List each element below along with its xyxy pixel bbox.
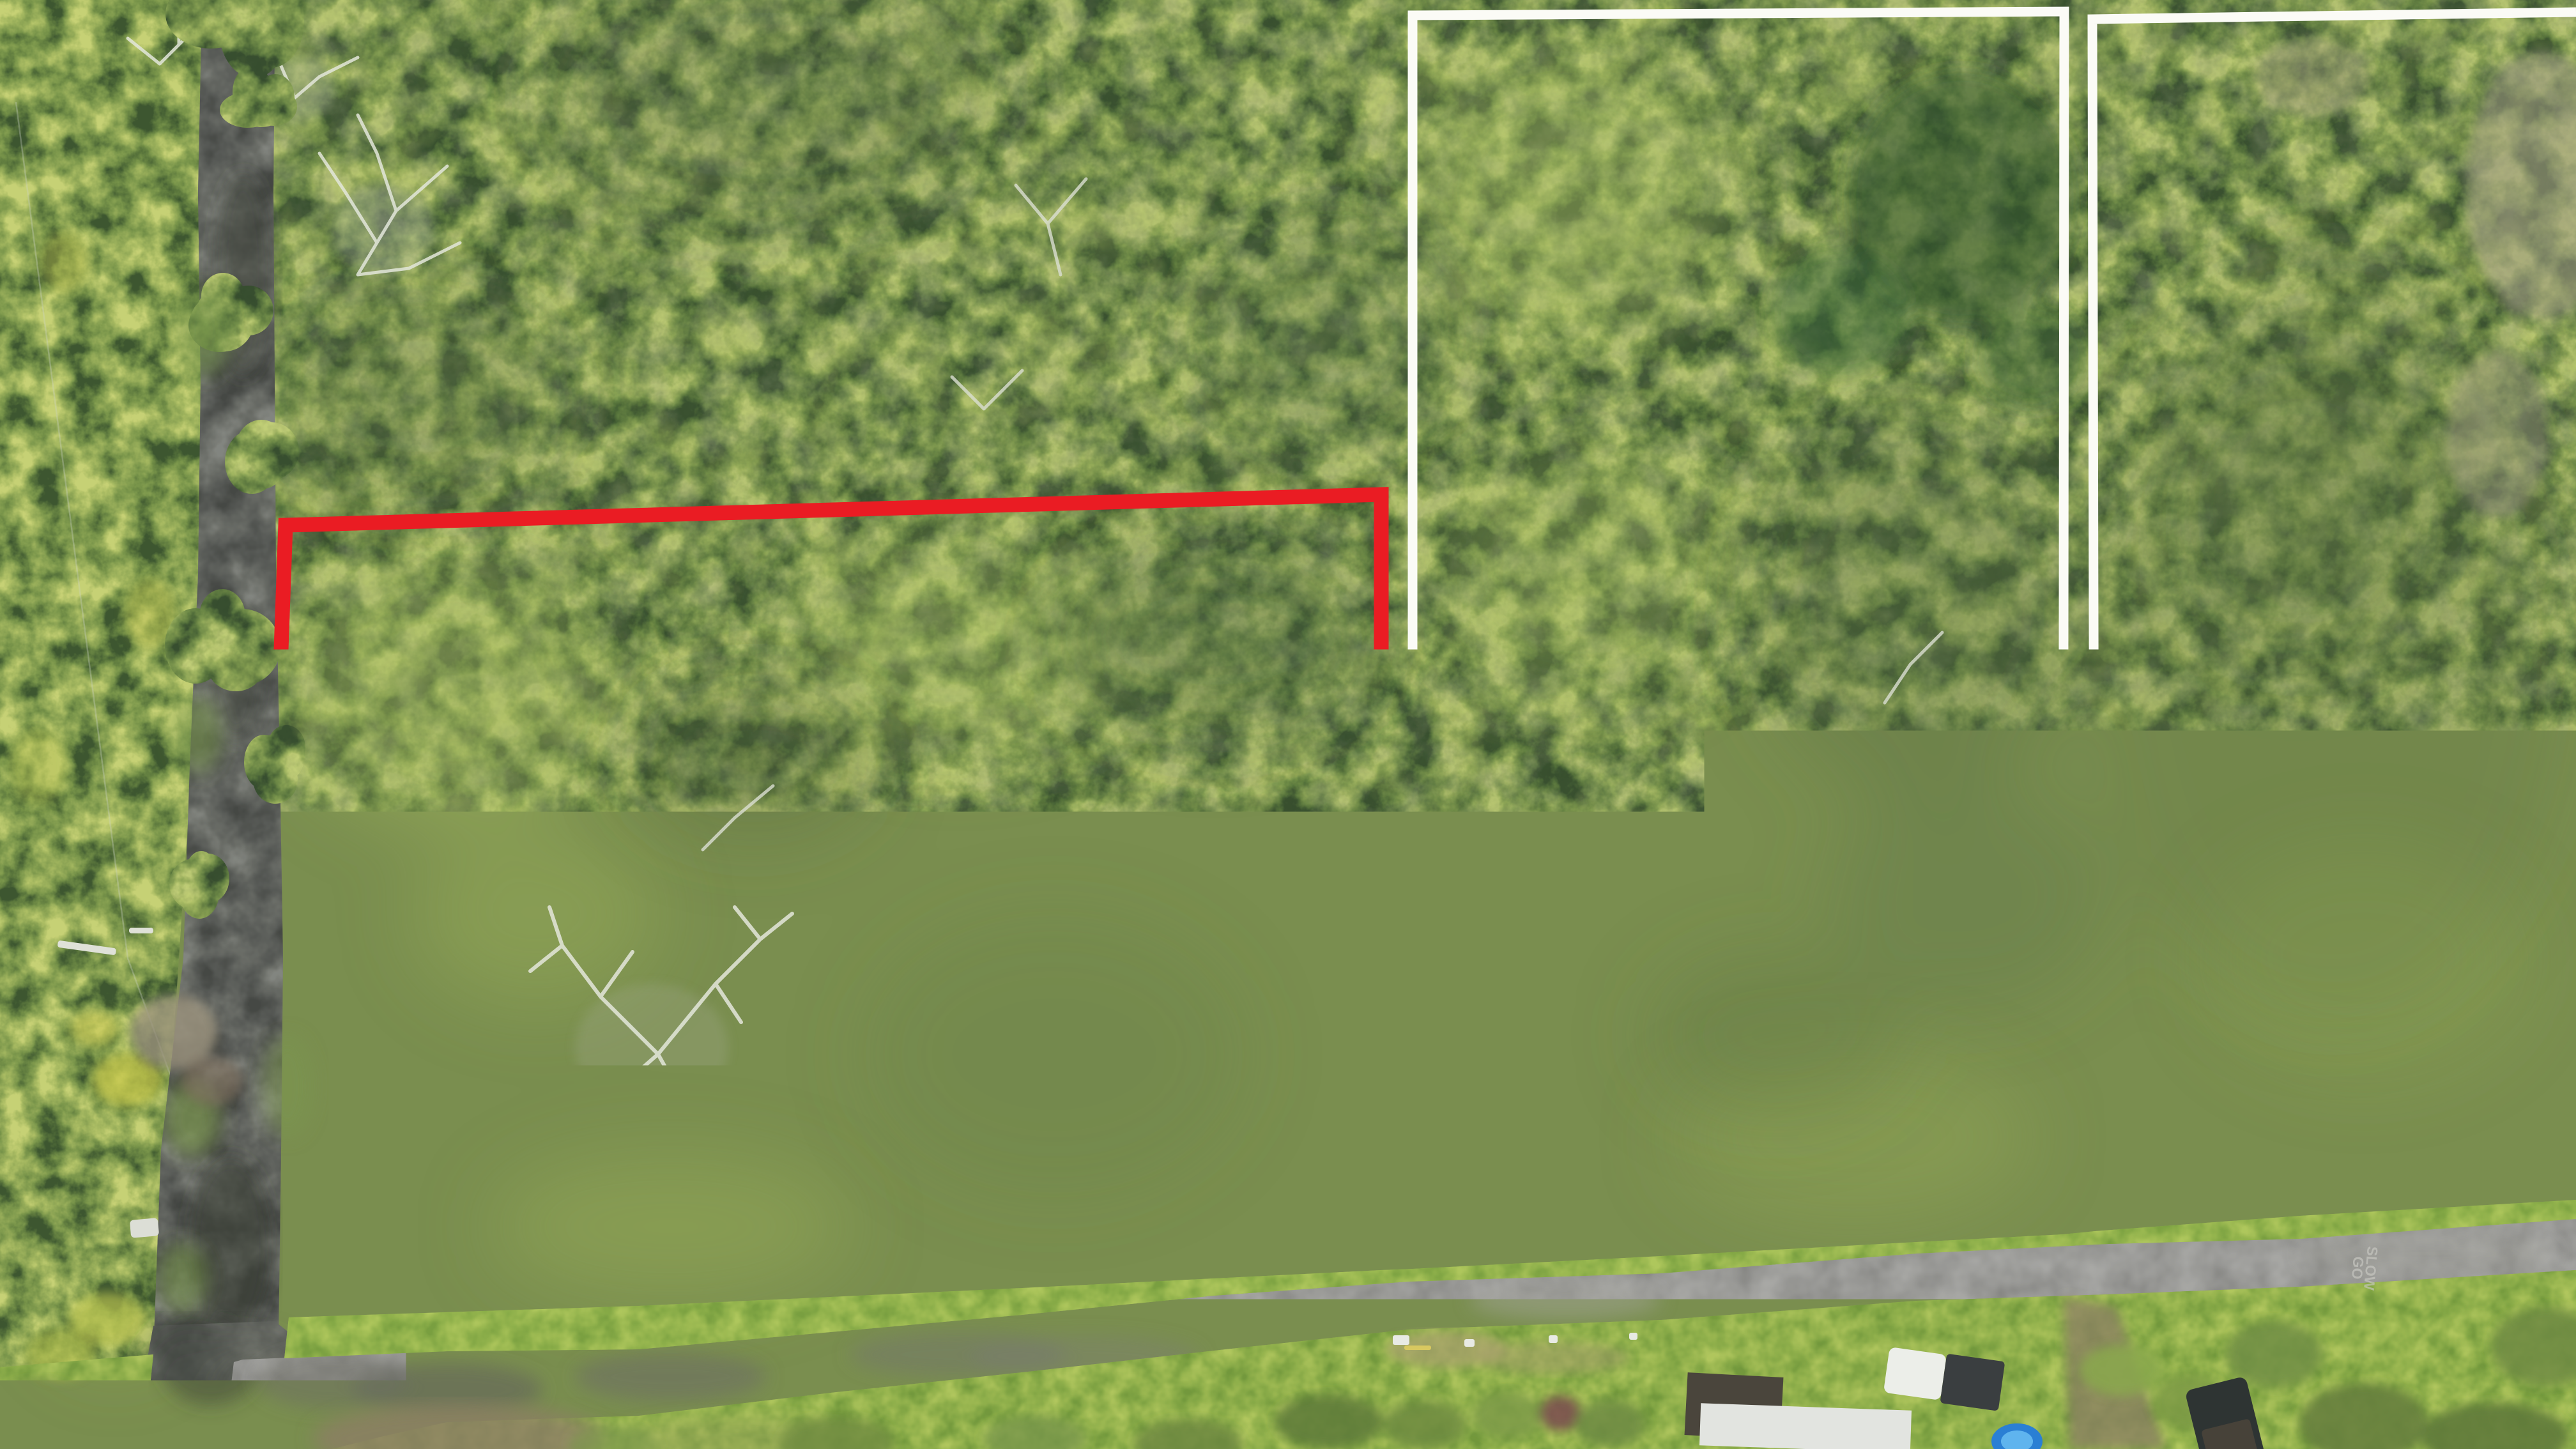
svg-text:GO: GO [1659,1288,1677,1312]
svg-text:26: 26 [161,1418,188,1445]
svg-text:GO: GO [2349,1256,2367,1280]
